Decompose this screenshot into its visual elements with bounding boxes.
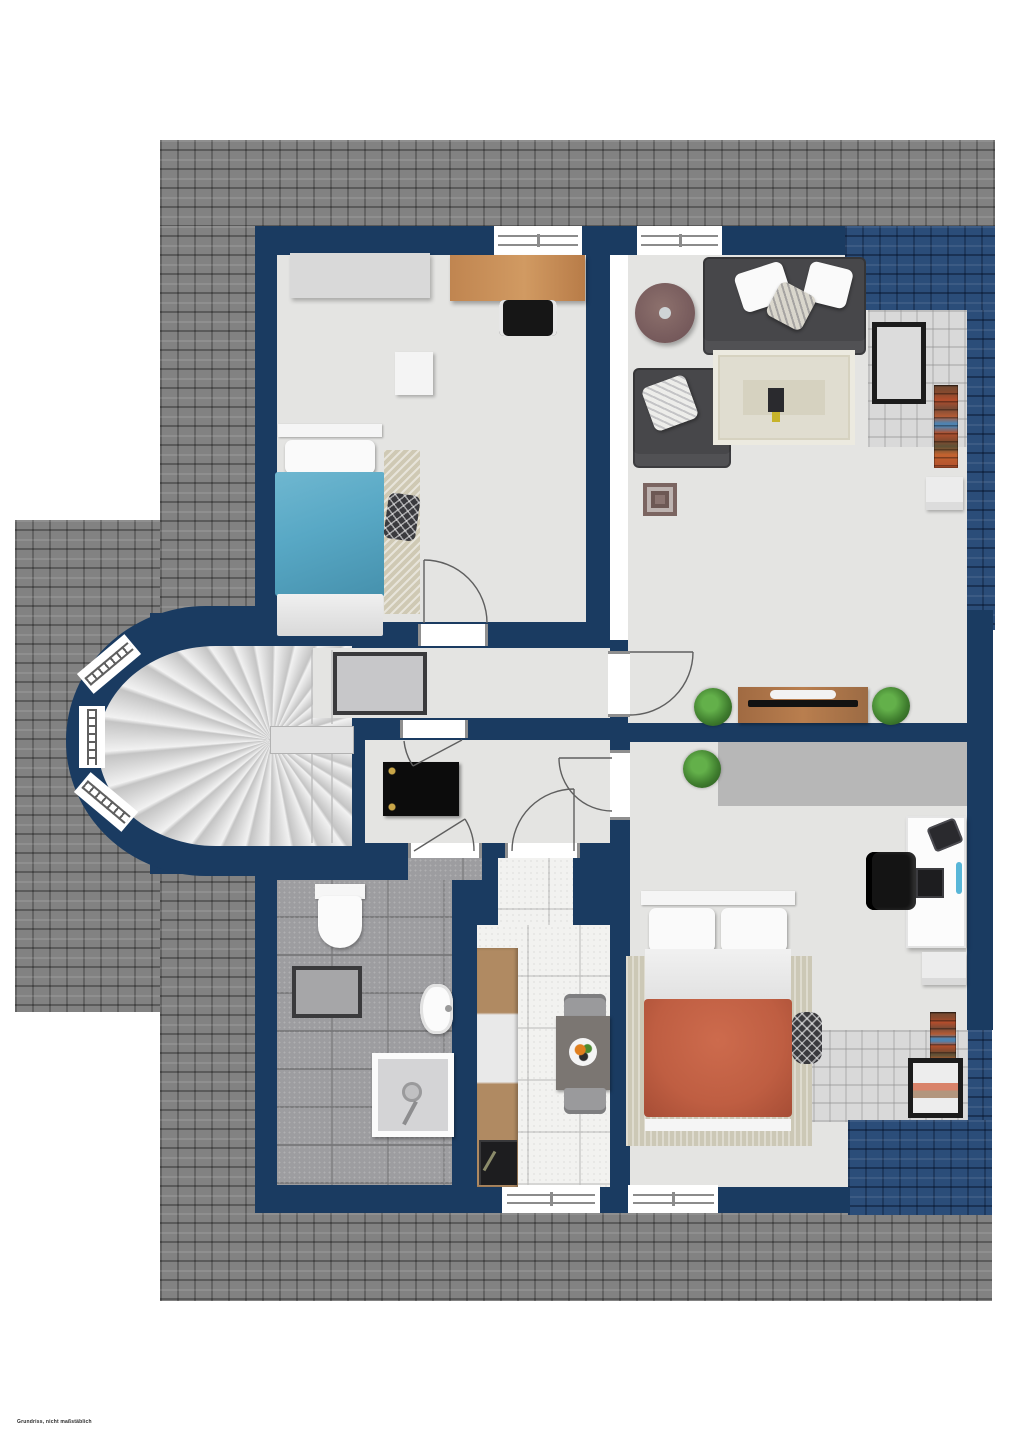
- wall-hall-bottom: [345, 718, 630, 740]
- wooden-desk: [450, 255, 585, 301]
- window-mullion: [550, 1192, 553, 1205]
- floor-kitchen-upper: [498, 858, 573, 925]
- floor-plan-canvas: Grundriss, nicht maßstäblich: [0, 0, 1024, 1449]
- wall-bath-kitchen: [452, 925, 477, 1187]
- single-bed-blue: [275, 424, 385, 640]
- wall-left-lower: [255, 855, 277, 1213]
- footer-disclaimer: Grundriss, nicht maßstäblich: [17, 1419, 92, 1425]
- floor-bathroom: [277, 880, 452, 1185]
- black-doormat: [383, 762, 459, 816]
- roof-blue-bedroom-corner: [848, 1120, 992, 1187]
- plant-living-right: [872, 687, 910, 725]
- roof-blue-top-right: [845, 226, 995, 310]
- hallway-framed-rug: [333, 652, 427, 715]
- sofa: [703, 257, 866, 355]
- plant-living-left: [694, 688, 732, 726]
- dresser: [290, 253, 430, 298]
- wall-right: [965, 610, 993, 1030]
- wall-between-top-rooms: [585, 226, 610, 640]
- bed-blanket-red: [644, 999, 792, 1117]
- door-opening-vestibule: [400, 720, 468, 738]
- plant-bedroom: [683, 750, 721, 788]
- bookshelf-living: [934, 385, 958, 468]
- tv-soundbar: [770, 690, 836, 699]
- window-bedroom-bottom: [628, 1185, 718, 1213]
- window-mullion: [672, 1192, 675, 1205]
- bay-window-middle: [79, 706, 105, 768]
- door-opening-bedroom-top-left: [418, 624, 488, 646]
- bed-foot-sheet: [277, 594, 383, 636]
- roof-top-band: [160, 140, 995, 226]
- roof-bottom-band: [160, 1213, 992, 1301]
- bed-pillow-left: [649, 908, 715, 952]
- stair-landing: [270, 726, 354, 754]
- desk-pen-blue: [956, 862, 962, 894]
- washbasin-faucet: [445, 1005, 452, 1012]
- door-opening-living-room: [608, 651, 630, 717]
- bedroom-floor-pillow: [792, 1012, 822, 1064]
- desk-chair: [499, 300, 557, 336]
- fruit-plate: [569, 1038, 597, 1066]
- bed-headboard: [278, 424, 382, 437]
- door-opening-kitchen: [505, 843, 580, 858]
- printer-shelf: [922, 952, 966, 985]
- wall-left-upper: [255, 226, 277, 640]
- window-living-room: [637, 226, 722, 255]
- bedroom-office-chair: [866, 852, 916, 910]
- toilet-bowl: [318, 896, 362, 948]
- tv-flat: [748, 700, 858, 707]
- window-mullion: [679, 234, 682, 248]
- white-shelf-living: [926, 477, 963, 510]
- kitchen-stove: [479, 1140, 517, 1185]
- window-bedroom-top-left: [494, 226, 582, 255]
- window-glazing: [87, 709, 96, 765]
- floor-bathroom-threshold: [408, 858, 482, 880]
- roof-blue-right-strip: [965, 1030, 992, 1125]
- bed-headboard: [641, 891, 795, 905]
- rug-remote: [768, 388, 784, 412]
- window-kitchen: [502, 1185, 600, 1213]
- kitchen-chair-bottom: [564, 1088, 606, 1114]
- bedroom-wardrobe-band: [718, 742, 967, 806]
- door-opening-bathroom: [408, 843, 482, 858]
- armchair-pillow: [641, 374, 700, 433]
- shower-drain: [402, 1082, 422, 1102]
- roof-blue-right-column: [965, 310, 995, 630]
- double-bed-red: [641, 891, 795, 1135]
- wall-living-bedroom: [628, 723, 993, 742]
- round-table-center: [659, 307, 671, 319]
- bed-blanket-blue: [275, 472, 385, 596]
- bedroom-mirror: [908, 1058, 963, 1118]
- side-table: [643, 483, 677, 516]
- living-area-rug: [713, 350, 855, 445]
- paper-sheet: [395, 352, 433, 395]
- patterned-pillow: [383, 492, 421, 542]
- bed-pillow: [285, 440, 375, 474]
- bed-pillow-right: [721, 908, 787, 952]
- door-opening-bedroom-bottom: [610, 750, 630, 820]
- bath-mat: [292, 966, 362, 1018]
- wall-mirror-living: [872, 322, 926, 404]
- window-mullion: [537, 234, 540, 248]
- bed-foot-bar: [645, 1119, 791, 1131]
- desk-monitor: [916, 868, 944, 898]
